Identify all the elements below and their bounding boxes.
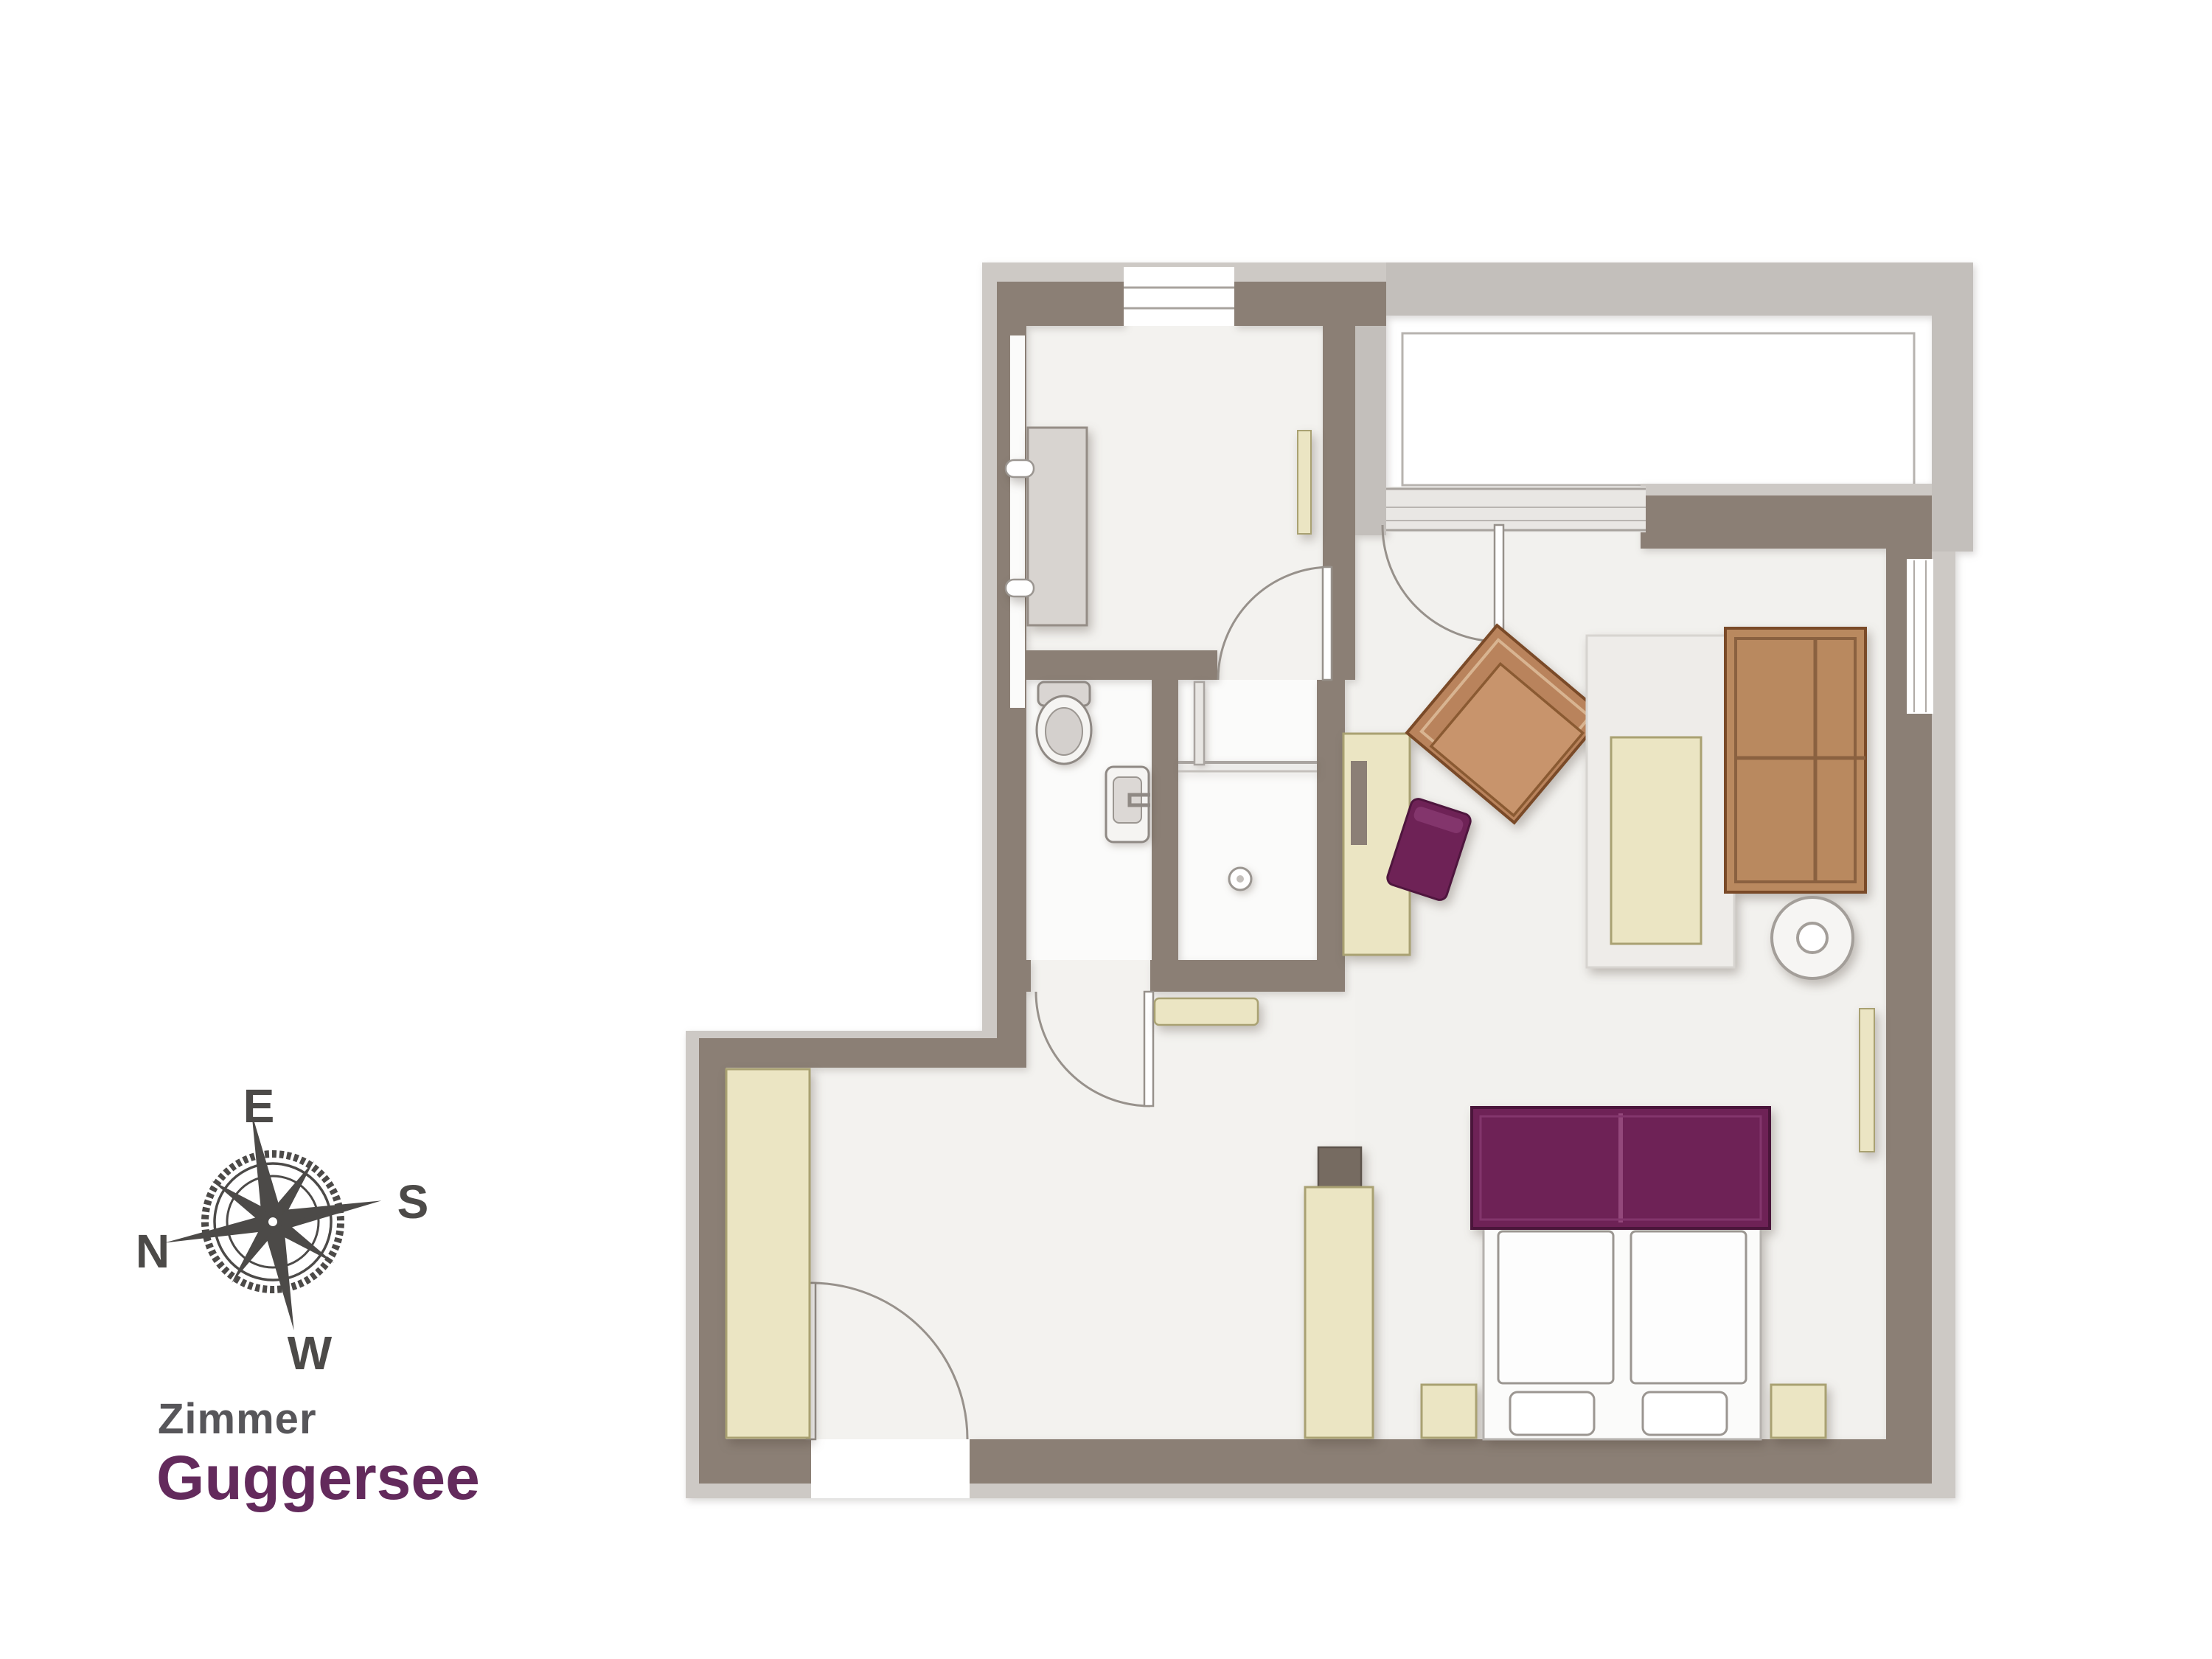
mattress-left <box>1498 1231 1613 1383</box>
wall-bath-south-a <box>997 960 1031 992</box>
sofa-base <box>1725 628 1865 892</box>
pillow-right <box>1643 1392 1727 1435</box>
toilet-bowl <box>1046 708 1082 755</box>
wall-edge-west-lower <box>686 1040 699 1498</box>
compass-spike-right <box>282 1192 383 1229</box>
window-balcony-band <box>1386 487 1646 532</box>
wall-wc-shower-divider <box>1152 680 1178 992</box>
floor-balcony <box>1386 316 1932 488</box>
shower-drain-center <box>1237 875 1244 883</box>
wall-mirror <box>1298 431 1311 534</box>
wall-edge-north-east <box>1641 484 1932 495</box>
wall-edge-west <box>982 262 997 1068</box>
balcony-wall-east <box>1932 316 1973 552</box>
nightstand-right <box>1771 1385 1826 1438</box>
closet-room-door-leaf <box>1323 567 1332 680</box>
window-north <box>1124 267 1234 326</box>
double-bed <box>1472 1107 1770 1439</box>
cabinet-knob-top <box>1006 460 1034 477</box>
wall-top-b <box>1234 282 1386 326</box>
nightstand-left <box>1422 1385 1476 1438</box>
wall-entry-room-south <box>1026 650 1217 680</box>
radiator <box>1860 1009 1874 1152</box>
mattress-right <box>1631 1231 1746 1383</box>
window-east <box>1907 559 1933 714</box>
wall-south-a <box>699 1439 811 1484</box>
side-table-center <box>1798 923 1827 953</box>
wall-edge-east <box>1932 552 1955 1498</box>
wall-shower-east <box>1317 680 1345 992</box>
entry-wardrobe <box>726 1069 810 1438</box>
sink-basin <box>1113 777 1141 823</box>
wall-west-lower <box>699 1068 726 1439</box>
wall-south-b <box>970 1439 1932 1484</box>
room-type-label: Zimmer <box>158 1398 317 1441</box>
sofa <box>1725 628 1865 892</box>
wall-corridor-north <box>699 1038 1026 1068</box>
wall-west-niche <box>1010 335 1025 708</box>
cabinet-knob-bottom <box>1006 580 1034 597</box>
entry-door-opening <box>811 1439 970 1498</box>
minibar-top <box>1318 1147 1361 1190</box>
floorplan-page: E S N W Zimmer Guggersee <box>0 0 2212 1659</box>
balcony-wall-west <box>1355 316 1386 535</box>
closet-cabinet <box>1028 428 1087 625</box>
wc-door-leaf <box>1144 992 1153 1106</box>
bench <box>1155 998 1258 1025</box>
compass-label-south: S <box>397 1175 429 1229</box>
desk-slot <box>1351 761 1367 845</box>
compass-label-west: W <box>288 1326 332 1380</box>
floorplan-drawing <box>0 0 2212 1659</box>
compass-label-east: E <box>243 1079 275 1133</box>
compass-label-north: N <box>136 1224 170 1279</box>
room-name-label: Guggersee <box>156 1447 480 1509</box>
wall-bath-south-b <box>1150 960 1345 992</box>
shower-glass-door <box>1194 682 1204 765</box>
minibar-unit <box>1305 1187 1373 1438</box>
balcony-door-leaf <box>1495 525 1503 641</box>
balcony-wall-top <box>1386 262 1973 316</box>
wall-north-east <box>1641 495 1932 549</box>
pillow-left <box>1510 1392 1594 1435</box>
coffee-table <box>1611 737 1701 944</box>
